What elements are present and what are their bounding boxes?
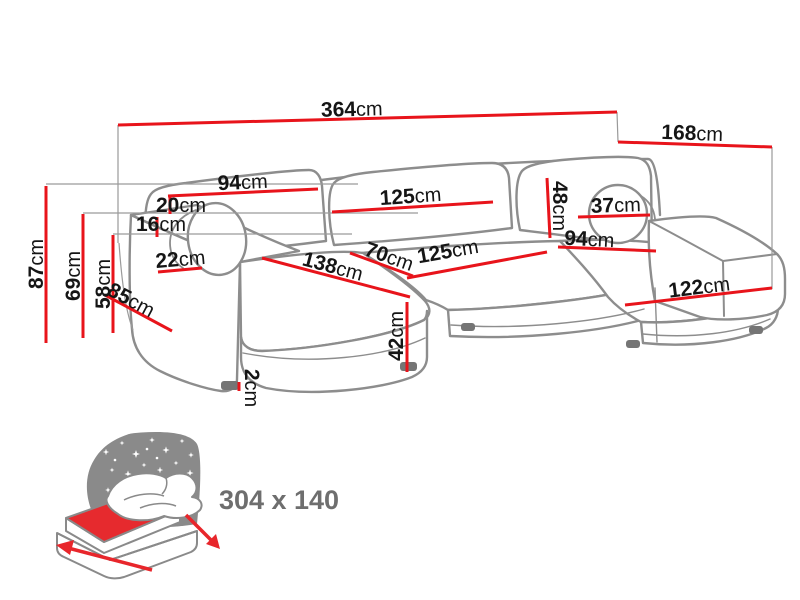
sofa-dimension-diagram: 364cm 168cm 94cm 125cm 48cm 37cm 20cm 16… — [0, 0, 800, 600]
sleeping-area-label: 304 x 140 — [219, 485, 339, 515]
dim-back-center-label: 125cm — [379, 183, 442, 210]
dim-back-left-label: 94cm — [217, 170, 268, 196]
diagram-canvas: 364cm 168cm 94cm 125cm 48cm 37cm 20cm 16… — [0, 0, 800, 600]
dim-gap-bottom-label: 16cm — [136, 213, 186, 236]
dim-armrest-width-label: 22cm — [155, 246, 207, 273]
dim-back-height-label: 48cm — [548, 181, 571, 231]
sleeping-function-icon — [56, 432, 220, 579]
dim-total-width-label: 364cm — [321, 97, 383, 122]
dim-round-cushion-label: 37cm — [590, 193, 641, 218]
dim-total-depth-label: 168cm — [661, 121, 723, 146]
dim-overall-height-label: 87cm — [25, 239, 48, 289]
blanket — [106, 473, 201, 520]
dim-armrest-height-label: 69cm — [62, 251, 85, 301]
dim-seat-right-label: 94cm — [564, 227, 615, 253]
dim-seat-height-label: 42cm — [385, 311, 408, 361]
dim-leg-height-label: 2cm — [240, 369, 263, 407]
